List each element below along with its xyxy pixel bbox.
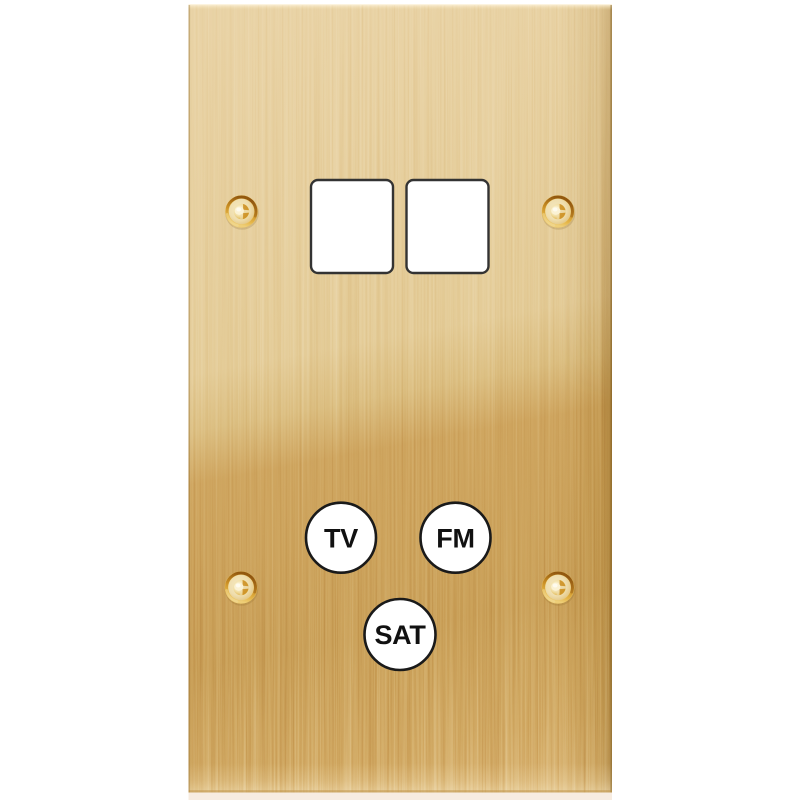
svg-text:SAT: SAT [374,620,426,650]
svg-text:TV: TV [324,523,358,553]
svg-text:FM: FM [436,523,474,553]
